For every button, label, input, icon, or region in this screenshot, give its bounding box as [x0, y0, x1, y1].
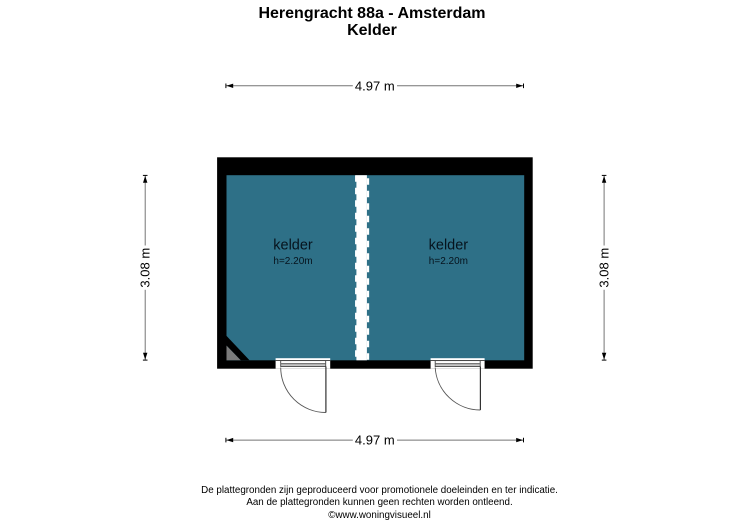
svg-text:h=2.20m: h=2.20m [273, 256, 312, 267]
svg-text:4.97 m: 4.97 m [355, 78, 395, 93]
svg-text:3.08 m: 3.08 m [138, 248, 153, 288]
svg-text:3.08 m: 3.08 m [597, 248, 612, 288]
svg-text:h=2.20m: h=2.20m [429, 256, 468, 267]
svg-text:4.97 m: 4.97 m [355, 433, 395, 448]
svg-text:kelder: kelder [273, 238, 313, 254]
svg-text:kelder: kelder [429, 238, 469, 254]
